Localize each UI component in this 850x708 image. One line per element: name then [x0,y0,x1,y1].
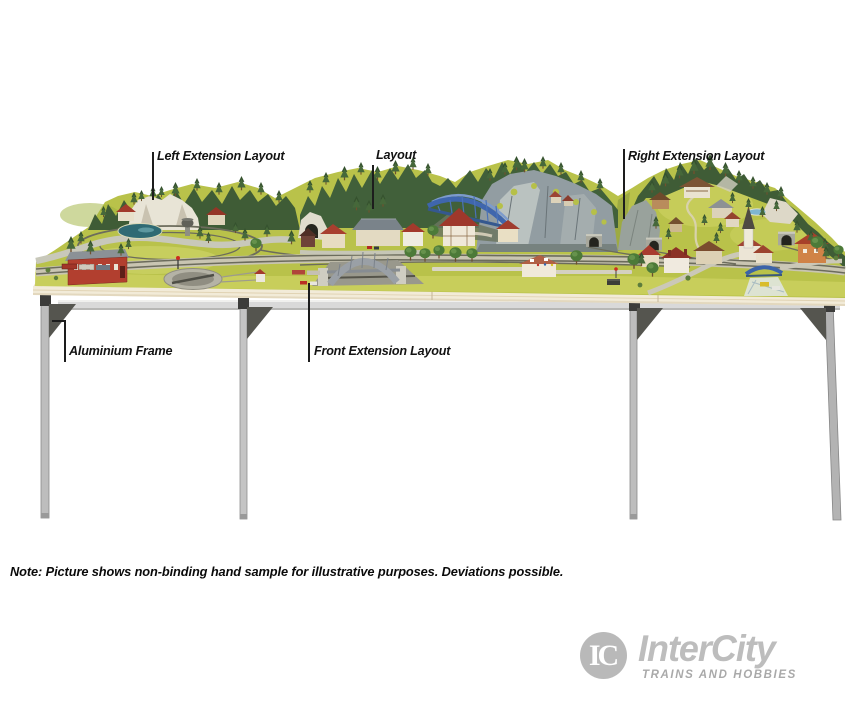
pond [118,224,162,239]
annotation-right-extension-layout: Right Extension Layout [628,150,764,163]
annotation-layout: Layout [376,149,416,162]
product-illustration-page: Left Extension Layout Layout Right Exten… [0,0,850,708]
aluminium-frame [40,295,841,520]
logo-tagline: TRAINS AND HOBBIES [642,669,797,681]
layout-terrain [35,154,845,298]
town-hall [352,219,404,246]
monogram-text: IC [589,639,616,673]
annotation-left-extension-layout: Left Extension Layout [157,150,284,163]
table-leg [41,296,49,518]
table-leg [240,299,247,519]
leader-line-layout [372,165,374,209]
table-leg [630,301,637,519]
table-leg [825,301,841,520]
logo-wordmark: InterCity TRAINS AND HOBBIES [638,632,797,681]
annotation-aluminium-frame: Aluminium Frame [69,345,172,358]
leader-line-left-extension [152,152,154,200]
annotation-front-extension-layout: Front Extension Layout [314,345,450,358]
leader-line-right-extension [623,149,625,219]
tunnel-portal [586,234,602,247]
intercity-monogram-icon: IC [580,632,627,679]
logo-name: InterCity [638,632,792,666]
leader-line-aluminium-frame [64,320,66,362]
leader-line-front-extension [308,283,310,362]
disclaimer-note: Note: Picture shows non-binding hand sam… [10,564,563,579]
intercity-logo: IC InterCity TRAINS AND HOBBIES [580,632,797,681]
tunnel-portal [778,232,795,246]
